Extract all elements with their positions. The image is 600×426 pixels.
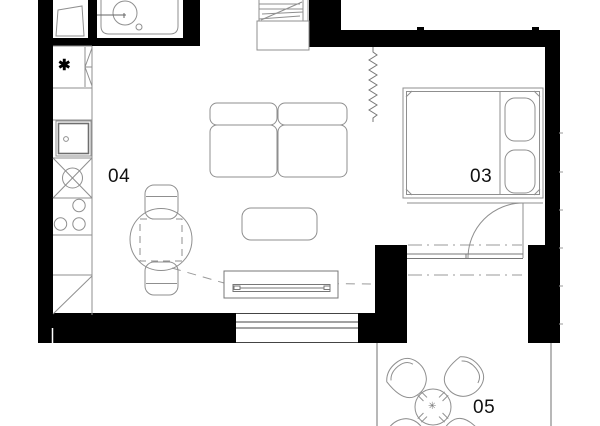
sofa-seat-cushion bbox=[210, 125, 277, 177]
wall-bath-partition bbox=[88, 0, 97, 40]
room-label-03: 03 bbox=[470, 167, 492, 186]
fridge bbox=[56, 121, 91, 156]
sink-cabinet bbox=[53, 158, 92, 198]
washing-machine bbox=[56, 6, 84, 36]
sofa-back-cushion bbox=[278, 103, 347, 125]
dining-table-leaf bbox=[140, 219, 182, 261]
room-label-05: 05 bbox=[473, 398, 495, 417]
corridor-centerlines bbox=[408, 245, 522, 275]
table-rim-tick bbox=[418, 413, 427, 422]
corner-cabinet-diagonal bbox=[53, 276, 92, 314]
floor-plan-canvas bbox=[0, 0, 600, 426]
table-center-icon: ✳ bbox=[428, 402, 436, 412]
wall-top bbox=[341, 30, 560, 47]
door-swing-arc bbox=[468, 203, 523, 258]
hob-burners bbox=[54, 199, 85, 230]
coffee-table bbox=[242, 208, 317, 240]
sink-drain-circle bbox=[113, 1, 137, 25]
bathroom bbox=[56, 0, 178, 36]
curtain-icon bbox=[369, 47, 377, 122]
wardrobe-lower-box bbox=[257, 21, 309, 50]
sofa-back-cushion bbox=[210, 103, 277, 125]
wall-right-lower bbox=[528, 245, 560, 343]
tv-stand bbox=[224, 271, 338, 298]
window bbox=[236, 314, 358, 343]
balcony-boundary bbox=[377, 343, 551, 426]
dining-chair-top bbox=[145, 185, 178, 219]
balcony-chair bbox=[378, 411, 431, 426]
wall-bottom-right bbox=[358, 313, 407, 343]
dining-set bbox=[130, 185, 192, 295]
dining-chair-bottom bbox=[145, 262, 178, 295]
door bbox=[407, 203, 543, 259]
sink-small-circle bbox=[136, 24, 142, 30]
dining-table bbox=[130, 209, 192, 271]
wardrobe bbox=[257, 0, 309, 50]
wall-bottom-left bbox=[38, 313, 236, 343]
wall-bath-bottom bbox=[38, 38, 200, 46]
cabinet-fold-icon bbox=[85, 47, 92, 87]
washer-connection-icon: ✱ bbox=[58, 58, 71, 73]
wall-right-upper bbox=[545, 30, 560, 245]
table-rim-tick bbox=[439, 413, 448, 422]
wall-top-block bbox=[309, 0, 341, 47]
wall-left bbox=[38, 0, 53, 343]
sink-basin bbox=[101, 0, 178, 34]
wall-tick bbox=[417, 27, 424, 31]
room-label-04: 04 bbox=[108, 167, 130, 186]
floor-plan: 04 03 05 ✱ ✳ bbox=[0, 0, 600, 426]
table-rim-tick bbox=[439, 392, 448, 401]
wall-tick bbox=[532, 27, 539, 31]
kitchen-counter bbox=[53, 46, 92, 315]
sofa-seat-cushion bbox=[278, 125, 347, 177]
sofa bbox=[210, 103, 347, 177]
